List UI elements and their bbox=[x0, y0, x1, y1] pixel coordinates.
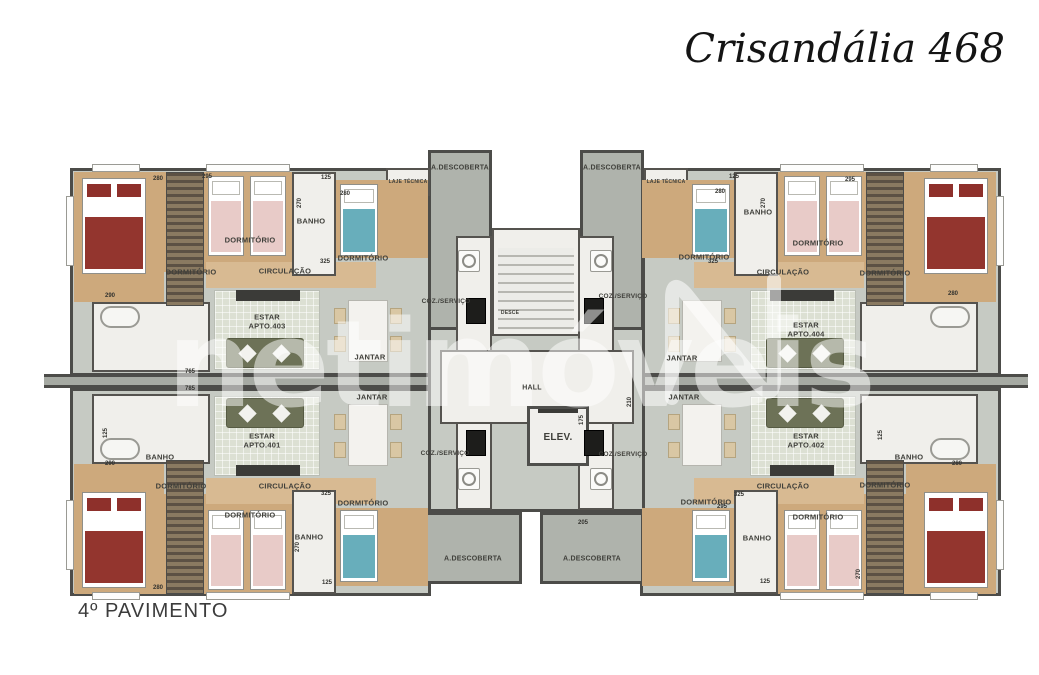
room-label: A.DESCOBERTA bbox=[444, 556, 502, 565]
dimension-label: 280 bbox=[153, 585, 163, 591]
room-label: A.DESCOBERTA bbox=[583, 165, 641, 174]
dimension-label: 125 bbox=[322, 580, 332, 586]
dimension-label: 295 bbox=[717, 504, 727, 510]
room-label: DORMITÓRIO bbox=[225, 235, 276, 244]
room-label: A.DESCOBERTA bbox=[563, 556, 621, 565]
plan-title: Crisandália 468 bbox=[684, 26, 1005, 72]
room-label: BANHO bbox=[146, 452, 175, 461]
room-label: ESTAR APTO.404 bbox=[788, 321, 825, 340]
dimension-label: 270 bbox=[297, 198, 303, 208]
dimension-label: 785 bbox=[185, 386, 195, 392]
dimension-label: 210 bbox=[627, 397, 633, 407]
dimension-label: 295 bbox=[845, 177, 855, 183]
room-label: ESTAR APTO.403 bbox=[249, 313, 286, 332]
room-label: COZ./SERVIÇO bbox=[421, 450, 470, 458]
dimension-label: 295 bbox=[202, 174, 212, 180]
dimension-label: 765 bbox=[185, 369, 195, 375]
room-label: A.DESCOBERTA bbox=[431, 165, 489, 174]
dimension-label: 325 bbox=[320, 259, 330, 265]
dimension-label: 270 bbox=[856, 569, 862, 579]
room-label: JANTAR bbox=[354, 352, 385, 361]
room-label: DESCE bbox=[501, 310, 519, 316]
room-label: HALL bbox=[522, 385, 541, 394]
dimension-label: 280 bbox=[153, 176, 163, 182]
room-label: JANTAR bbox=[666, 353, 697, 362]
floorplan-page: { "title": "Crisandália 468", "floor_lab… bbox=[0, 0, 1039, 675]
room-label: COZ./SERVIÇO bbox=[599, 451, 648, 459]
dimension-label: 205 bbox=[578, 520, 588, 526]
dimension-label: 325 bbox=[321, 491, 331, 497]
dimension-label: 290 bbox=[105, 461, 115, 467]
dimension-label: 270 bbox=[761, 198, 767, 208]
dimension-label: 125 bbox=[760, 579, 770, 585]
dimension-label: 290 bbox=[105, 293, 115, 299]
dimension-label: 125 bbox=[321, 175, 331, 181]
room-label: ESTAR APTO.401 bbox=[244, 432, 281, 451]
dimension-label: 125 bbox=[729, 174, 739, 180]
room-label: ESTAR APTO.402 bbox=[788, 432, 825, 451]
room-label: DORMITÓRIO bbox=[156, 481, 207, 490]
room-label: LAJE TÉCNICA bbox=[647, 179, 686, 185]
dimension-label: 175 bbox=[579, 415, 585, 425]
room-label: DORMITÓRIO bbox=[679, 252, 730, 261]
room-label: BANHO bbox=[295, 532, 324, 541]
room-label: DORMITÓRIO bbox=[338, 498, 389, 507]
room-label: DORMITÓRIO bbox=[793, 512, 844, 521]
floorplan: netimóveis DORMITÓRIOBANHODORMITÓRIODORM… bbox=[0, 0, 1039, 675]
room-label: DORMITÓRIO bbox=[860, 268, 911, 277]
room-label: DORMITÓRIO bbox=[166, 267, 217, 276]
room-label: ELEV. bbox=[544, 432, 573, 445]
dimension-labels-layer: 2802951252702803252907657851252902703251… bbox=[0, 0, 1039, 675]
room-label: DORMITÓRIO bbox=[338, 253, 389, 262]
room-label: BANHO bbox=[744, 207, 773, 216]
room-label: COZ./SERVIÇO bbox=[422, 298, 471, 306]
room-label: CIRCULAÇÃO bbox=[259, 481, 311, 490]
room-label: COZ./SERVIÇO bbox=[599, 293, 648, 301]
room-label: BANHO bbox=[297, 216, 326, 225]
room-label: BANHO bbox=[895, 452, 924, 461]
room-label: CIRCULAÇÃO bbox=[757, 481, 809, 490]
dimension-label: 280 bbox=[948, 291, 958, 297]
dimension-label: 280 bbox=[715, 189, 725, 195]
dimension-label: 125 bbox=[878, 430, 884, 440]
dimension-label: 325 bbox=[708, 259, 718, 265]
dimension-label: 270 bbox=[295, 542, 301, 552]
room-label: DORMITÓRIO bbox=[793, 238, 844, 247]
room-label: BANHO bbox=[743, 533, 772, 542]
room-label: JANTAR bbox=[356, 392, 387, 401]
dimension-label: 280 bbox=[952, 461, 962, 467]
room-label: CIRCULAÇÃO bbox=[259, 266, 311, 275]
room-label: CIRCULAÇÃO bbox=[757, 267, 809, 276]
floor-title: 4º PAVIMENTO bbox=[78, 600, 228, 623]
room-label: LAJE TÉCNICA bbox=[389, 179, 428, 185]
room-label: DORMITÓRIO bbox=[860, 480, 911, 489]
dimension-label: 125 bbox=[103, 428, 109, 438]
dimension-label: 325 bbox=[734, 492, 744, 498]
room-label: JANTAR bbox=[668, 392, 699, 401]
room-label: DORMITÓRIO bbox=[225, 510, 276, 519]
dimension-label: 280 bbox=[340, 191, 350, 197]
